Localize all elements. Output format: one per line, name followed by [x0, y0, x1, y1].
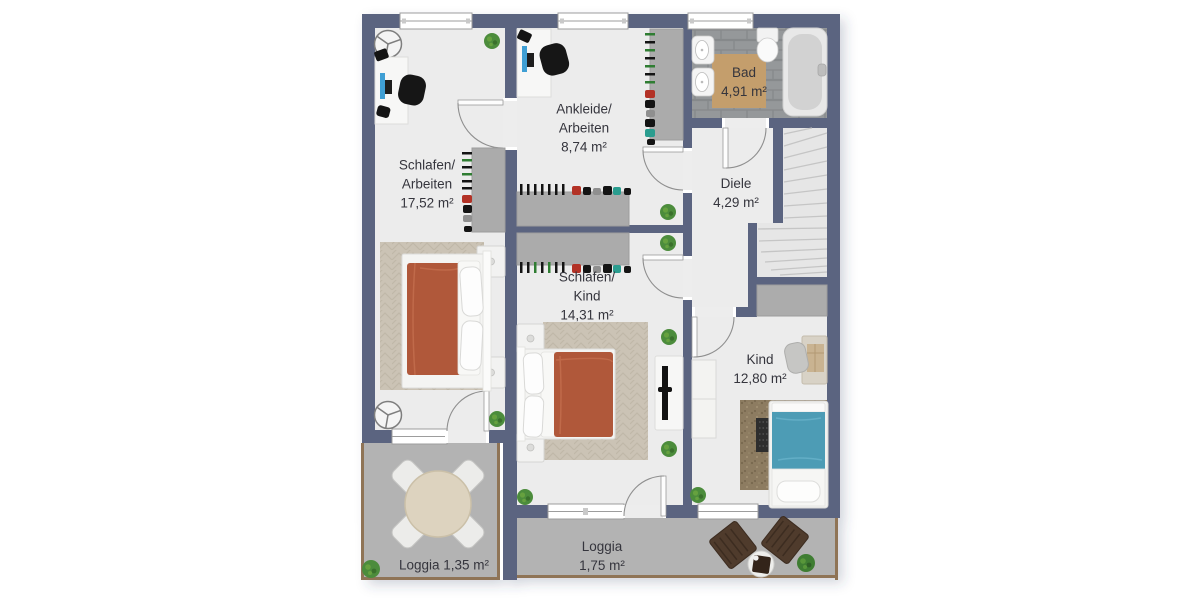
plant-icon	[362, 560, 380, 578]
window-bottom-schlafen-arbeiten	[392, 429, 447, 444]
room-label-loggia-bottom: Loggia 1,75 m²	[579, 537, 625, 575]
wardrobe-kind-left	[692, 360, 716, 438]
ceiling-light-icon	[375, 402, 402, 429]
plant-icon	[797, 554, 815, 572]
plant-icon	[489, 411, 505, 427]
room-label-schlafen-kind: Schlafen/ Kind 14,31 m²	[559, 267, 615, 324]
room-label-kind: Kind 12,80 m²	[733, 350, 786, 388]
monitor-icon	[380, 73, 385, 99]
wardrobe-ankleide-bottom	[517, 184, 631, 226]
tv-icon	[662, 366, 668, 420]
wardrobe-kind-niche	[757, 285, 827, 316]
room-label-ankleide: Ankleide/ Arbeiten 8,74 m²	[556, 99, 612, 156]
floorplan-screenshot: Schlafen/ Arbeiten 17,52 m² Ankleide/ Ar…	[0, 0, 1200, 600]
window-top-bad	[688, 13, 753, 29]
plant-icon	[661, 329, 677, 345]
monitor-icon	[522, 46, 527, 72]
round-table-icon	[405, 471, 471, 537]
room-label-diele: Diele 4,29 m²	[713, 174, 759, 212]
plant-icon	[690, 487, 706, 503]
wall-column-left-of-loggia	[503, 518, 517, 578]
plant-icon	[517, 489, 533, 505]
double-bed-schlafen-kind	[517, 322, 648, 462]
washbasin-icon	[692, 68, 714, 96]
window-top-ankleide	[558, 13, 628, 29]
wardrobe-ankleide-right	[645, 29, 683, 145]
washbasin-icon	[692, 36, 714, 64]
plant-icon	[660, 204, 676, 220]
double-bed-schlafen-arbeiten	[380, 242, 505, 391]
bathtub-icon	[783, 28, 827, 116]
window-bottom-schlafen-kind	[548, 504, 624, 519]
toilet-icon	[757, 28, 778, 62]
window-bottom-kind	[698, 504, 758, 519]
plant-icon	[660, 235, 676, 251]
tv-sideboard	[655, 356, 683, 430]
side-table-icon	[748, 551, 774, 577]
single-bed-icon	[769, 401, 828, 508]
plant-icon	[661, 441, 677, 457]
plant-icon	[484, 33, 500, 49]
room-label-loggia-left: Loggia 1,35 m²	[399, 555, 489, 574]
room-label-schlafen-arbeiten: Schlafen/ Arbeiten 17,52 m²	[399, 155, 455, 212]
room-label-bad: Bad 4,91 m²	[721, 63, 767, 101]
window-top-schlafen-arbeiten	[400, 13, 472, 29]
